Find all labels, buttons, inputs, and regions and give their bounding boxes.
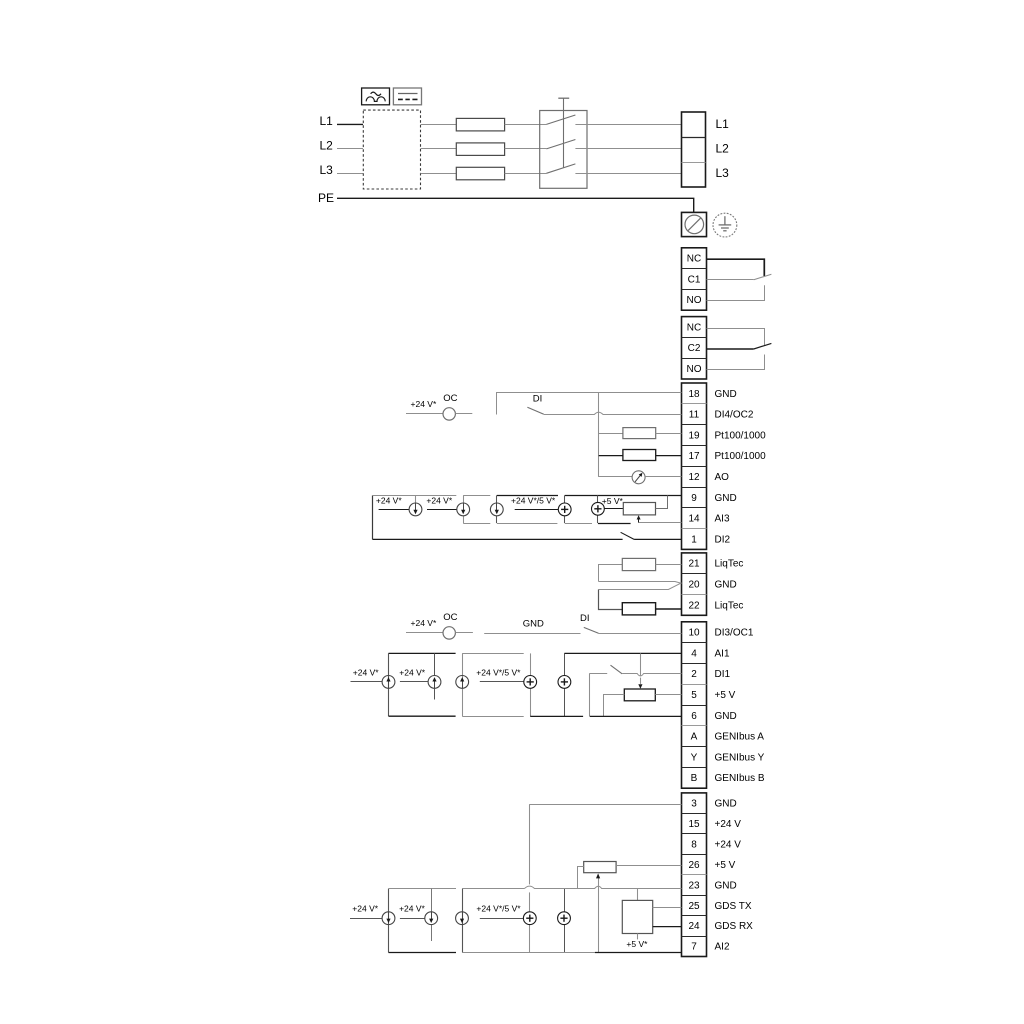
svg-text:AI3: AI3 <box>715 514 730 525</box>
svg-text:7: 7 <box>691 942 697 953</box>
svg-text:DI1: DI1 <box>715 669 731 680</box>
svg-text:+24 V*/5 V*: +24 V*/5 V* <box>476 903 521 913</box>
svg-text:GND: GND <box>715 711 737 722</box>
svg-text:LiqTec: LiqTec <box>715 600 744 611</box>
svg-text:C1: C1 <box>688 274 701 285</box>
svg-text:2: 2 <box>691 669 697 680</box>
svg-text:GND: GND <box>715 580 737 591</box>
svg-text:17: 17 <box>688 451 700 462</box>
svg-text:AI1: AI1 <box>715 648 730 659</box>
svg-text:Pt100/1000: Pt100/1000 <box>715 430 767 441</box>
svg-text:3: 3 <box>691 799 697 810</box>
svg-text:AO: AO <box>715 472 730 483</box>
svg-text:A: A <box>691 732 698 743</box>
svg-text:4: 4 <box>691 648 697 659</box>
svg-text:15: 15 <box>688 819 700 830</box>
svg-text:20: 20 <box>688 580 700 591</box>
svg-text:AI2: AI2 <box>715 942 730 953</box>
svg-text:23: 23 <box>688 880 700 891</box>
svg-text:26: 26 <box>688 860 700 871</box>
svg-text:Pt100/1000: Pt100/1000 <box>715 451 767 462</box>
svg-text:18: 18 <box>688 389 700 400</box>
svg-text:DI4/OC2: DI4/OC2 <box>715 410 754 421</box>
svg-text:PE: PE <box>318 191 334 205</box>
svg-text:+5 V: +5 V <box>715 860 736 871</box>
svg-text:11: 11 <box>689 410 700 421</box>
svg-text:9: 9 <box>691 493 697 504</box>
svg-text:+24 V*: +24 V* <box>352 903 378 913</box>
svg-text:+5 V*: +5 V* <box>626 939 648 949</box>
svg-text:NC: NC <box>687 322 701 333</box>
svg-text:+24 V*: +24 V* <box>376 495 402 505</box>
svg-text:GND: GND <box>715 799 737 810</box>
svg-text:+24 V*: +24 V* <box>411 618 437 628</box>
svg-text:L3: L3 <box>716 166 730 180</box>
svg-text:21: 21 <box>688 559 700 570</box>
svg-text:L1: L1 <box>716 117 730 131</box>
svg-text:Y: Y <box>691 752 698 763</box>
svg-text:NO: NO <box>687 364 702 375</box>
svg-text:+24 V*/5 V*: +24 V*/5 V* <box>511 495 556 505</box>
svg-text:DI: DI <box>533 393 543 404</box>
svg-text:+24 V*: +24 V* <box>399 903 425 913</box>
svg-text:+24 V*: +24 V* <box>399 668 425 678</box>
svg-text:24: 24 <box>688 921 700 932</box>
svg-text:+24 V: +24 V <box>715 819 742 830</box>
svg-text:B: B <box>691 773 698 784</box>
svg-text:GDS TX: GDS TX <box>715 901 752 912</box>
svg-text:LiqTec: LiqTec <box>715 559 744 570</box>
svg-text:L1: L1 <box>320 114 334 128</box>
svg-text:10: 10 <box>688 628 700 639</box>
svg-text:NO: NO <box>687 295 702 306</box>
svg-text:6: 6 <box>691 711 697 722</box>
svg-text:+24 V*: +24 V* <box>426 495 452 505</box>
svg-text:L2: L2 <box>716 142 730 156</box>
svg-text:+5 V*: +5 V* <box>602 496 624 506</box>
svg-text:NC: NC <box>687 254 701 265</box>
svg-text:12: 12 <box>688 472 700 483</box>
svg-text:GND: GND <box>715 880 737 891</box>
svg-text:DI: DI <box>580 613 590 624</box>
svg-text:1: 1 <box>691 534 697 545</box>
svg-text:+24 V*/5 V*: +24 V*/5 V* <box>476 668 521 678</box>
svg-text:8: 8 <box>691 839 697 850</box>
svg-text:GND: GND <box>523 619 544 630</box>
svg-text:L3: L3 <box>320 163 334 177</box>
svg-text:22: 22 <box>688 600 700 611</box>
svg-text:GENIbus A: GENIbus A <box>715 732 765 743</box>
svg-text:C2: C2 <box>688 343 701 354</box>
svg-text:+5 V: +5 V <box>715 690 736 701</box>
svg-text:25: 25 <box>688 901 700 912</box>
svg-text:GDS RX: GDS RX <box>715 921 754 932</box>
svg-text:L2: L2 <box>320 138 334 152</box>
svg-text:OC: OC <box>443 393 457 404</box>
svg-text:GENIbus B: GENIbus B <box>715 773 765 784</box>
svg-text:OC: OC <box>443 612 457 623</box>
svg-text:14: 14 <box>688 514 700 525</box>
svg-text:GND: GND <box>715 389 737 400</box>
svg-text:DI3/OC1: DI3/OC1 <box>715 628 754 639</box>
svg-text:GND: GND <box>715 493 737 504</box>
svg-text:5: 5 <box>691 690 697 701</box>
svg-text:19: 19 <box>688 430 700 441</box>
svg-text:DI2: DI2 <box>715 534 731 545</box>
svg-text:+24 V: +24 V <box>715 839 742 850</box>
svg-text:+24 V*: +24 V* <box>353 668 379 678</box>
svg-text:GENIbus Y: GENIbus Y <box>715 752 765 763</box>
svg-text:+24 V*: +24 V* <box>411 399 437 409</box>
